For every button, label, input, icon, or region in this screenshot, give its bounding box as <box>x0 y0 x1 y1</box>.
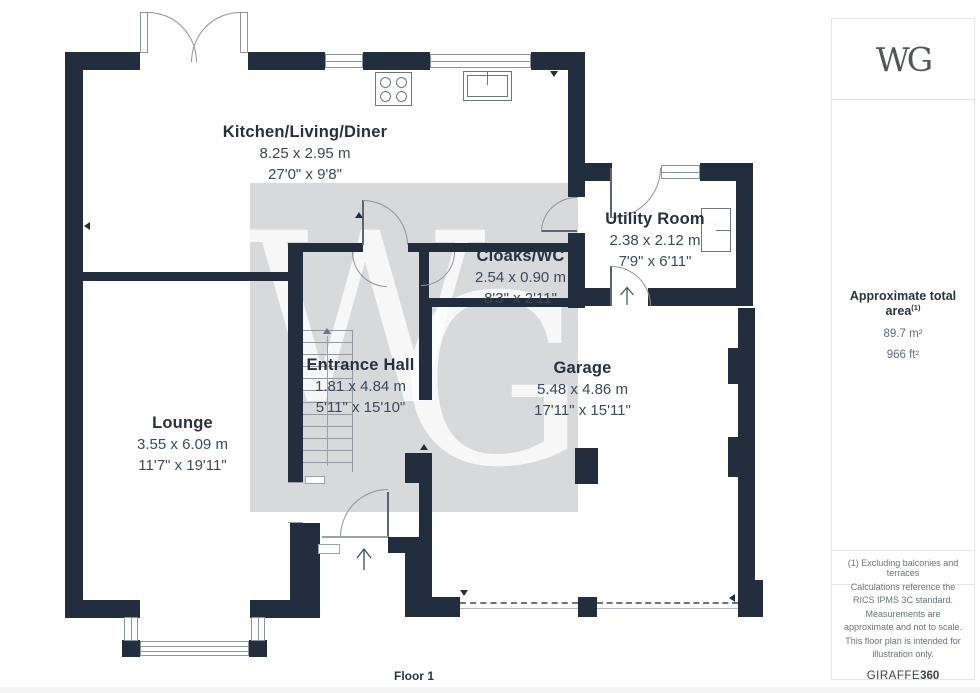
room-dim-imperial: 5'11" x 15'10" <box>278 397 443 418</box>
staircase-up-arrow-icon <box>323 328 331 334</box>
wall-garage-bottom-foot <box>405 597 460 617</box>
room-name: Cloaks/WC <box>438 245 603 267</box>
french-door-arc-right <box>191 12 240 62</box>
room-label-garage: Garage 5.48 x 4.86 m 17'11" x 15'11" <box>490 357 675 421</box>
room-dim-metric: 5.48 x 4.86 m <box>490 379 675 400</box>
room-dim-metric: 2.54 x 0.90 m <box>438 267 603 288</box>
wall-bay-corner-right <box>249 640 267 657</box>
room-label-cloaks: Cloaks/WC 2.54 x 0.90 m 8'3" x 2'11" <box>438 245 603 309</box>
room-dim-metric: 1.81 x 4.84 m <box>278 376 443 397</box>
wall-utility-top-stub <box>585 163 612 181</box>
wall-garage-door-pier <box>578 597 597 617</box>
total-area-panel: Approximate total area(1) 89.7 m² 966 ft… <box>831 99 975 551</box>
room-dim-imperial: 11'7" x 19'11" <box>80 455 285 476</box>
wall-garage-right <box>738 308 755 580</box>
room-label-hall: Entrance Hall 1.81 x 4.84 m 5'11" x 15'1… <box>278 354 443 418</box>
entrance-arrow-icon <box>354 546 374 572</box>
room-label-lounge: Lounge 3.55 x 6.09 m 11'7" x 19'11" <box>80 412 285 476</box>
wall-kitchen-right-upper <box>568 70 585 197</box>
room-dim-imperial: 27'0" x 9'8" <box>175 164 435 185</box>
utility-entrance-arrow-icon <box>618 285 636 307</box>
footnote-panel: (1) Excluding balconies and terraces <box>831 550 975 585</box>
garage-door-line-left <box>460 608 578 609</box>
window-utility <box>661 165 700 179</box>
french-door-jamb-right <box>240 12 248 53</box>
dimension-marker-icon <box>550 71 558 77</box>
wall-lounge-right-lower <box>290 523 320 618</box>
brand-bold: 360 <box>920 670 939 682</box>
opening-line-bottom <box>288 522 303 523</box>
sink-icon <box>463 71 512 101</box>
room-dim-metric: 8.25 x 2.95 m <box>175 143 435 164</box>
bottom-strip <box>0 687 980 693</box>
wall-bay-corner-left <box>122 640 140 657</box>
room-dim-imperial: 17'11" x 15'11" <box>490 400 675 421</box>
threshold-hall-lounge <box>305 476 325 484</box>
room-dim-metric: 3.55 x 6.09 m <box>80 434 285 455</box>
garage-door-line-right <box>597 608 738 609</box>
window-kitchen-2 <box>430 54 531 68</box>
room-name: Kitchen/Living/Diner <box>175 121 435 143</box>
garage-door-dashed-left <box>460 602 578 604</box>
porch-step <box>318 544 340 554</box>
window-kitchen-1 <box>325 54 363 68</box>
dimension-marker-icon <box>355 212 363 218</box>
floorplan-page: { "plan": { "floor_label": "Floor 1", "w… <box>0 0 980 693</box>
wall-top-d <box>531 52 585 70</box>
wall-lounge-bottom-left <box>83 600 140 618</box>
footnote-marker: (1) <box>911 303 920 312</box>
french-door-jamb-left <box>140 12 148 53</box>
giraffe360-brand: GIRAFFE360 <box>867 670 940 684</box>
room-name: Entrance Hall <box>278 354 443 376</box>
room-label-kitchen: Kitchen/Living/Diner 8.25 x 2.95 m 27'0"… <box>175 121 435 185</box>
total-area-title-text: Approximate total area <box>850 289 956 318</box>
total-area-sqm: 89.7 m² <box>884 328 923 340</box>
disclaimer-text: Calculations reference the RICS IPMS 3C … <box>841 581 965 662</box>
room-name: Utility Room <box>565 208 745 230</box>
total-area-title: Approximate total area(1) <box>832 289 974 318</box>
total-area-sqft: 966 ft² <box>887 349 920 361</box>
room-name: Garage <box>490 357 675 379</box>
wall-pilaster-2 <box>728 437 738 477</box>
wall-hall-top <box>288 243 363 252</box>
opening-line-top <box>288 482 303 483</box>
front-door-threshold <box>322 536 388 538</box>
wall-front-entry <box>388 537 432 553</box>
wall-pier-garage <box>575 448 598 484</box>
disclaimer-panel: Calculations reference the RICS IPMS 3C … <box>831 584 975 680</box>
dimension-marker-icon <box>420 444 428 450</box>
dimension-marker-icon <box>84 222 90 230</box>
garage-door-dashed-right <box>597 602 738 604</box>
room-dim-imperial: 8'3" x 2'11" <box>438 288 603 309</box>
floor-label: Floor 1 <box>354 669 474 683</box>
room-name: Lounge <box>80 412 285 434</box>
wall-utility-top-right <box>700 163 753 181</box>
brand-logo: WG <box>831 18 975 100</box>
wall-top-b <box>248 52 325 70</box>
window-bay-right <box>251 617 265 641</box>
window-bay-bottom <box>140 641 249 656</box>
brand-regular: GIRAFFE <box>867 670 920 682</box>
wall-left-outer <box>65 52 83 618</box>
hob-icon <box>375 72 412 106</box>
wall-top-a <box>83 52 140 70</box>
wall-top-c <box>363 52 430 70</box>
wall-pilaster-1 <box>728 348 738 384</box>
window-bay-left <box>124 617 138 641</box>
wall-garage-corner <box>738 580 763 617</box>
wall-garage-top-right <box>648 288 753 306</box>
dimension-marker-icon <box>729 594 735 602</box>
french-door-arc-left <box>148 12 197 62</box>
wall-pier-hall <box>405 453 419 483</box>
dimension-marker-icon <box>460 590 468 596</box>
wall-lounge-kitchen-divider <box>83 272 290 281</box>
wall-hall-garage-lower <box>419 453 432 540</box>
sidebar: WG Approximate total area(1) 89.7 m² 966… <box>831 18 975 680</box>
